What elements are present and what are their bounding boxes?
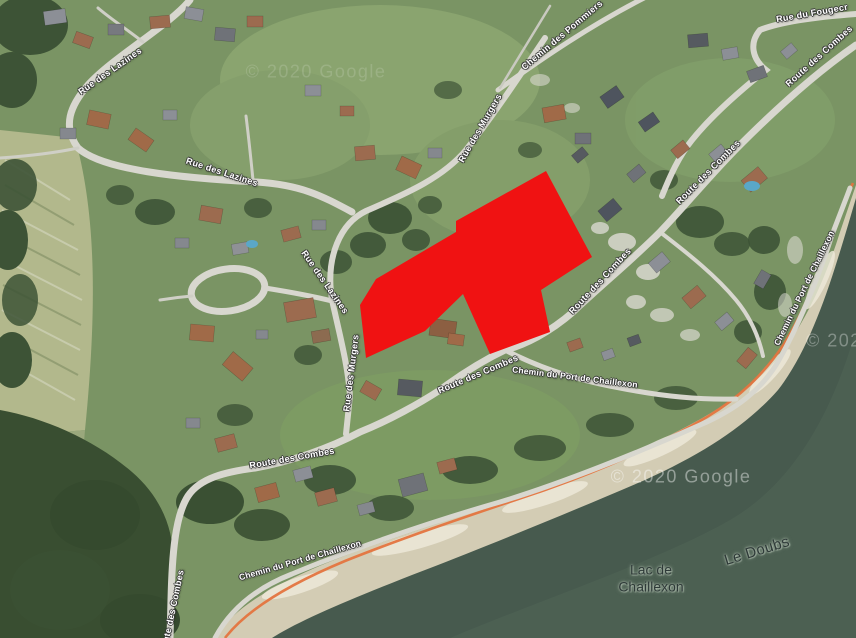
lake-label: Lac de Chaillexon (611, 561, 691, 594)
google-watermark: © 2020 Google (806, 331, 856, 352)
satellite-map-canvas[interactable]: Rue des Lazines Rue des Lazines Rue des … (0, 0, 856, 638)
google-watermark: © 2020 Google (611, 467, 752, 488)
satellite-imagery (0, 0, 856, 638)
google-watermark: © 2020 Google (246, 62, 387, 83)
